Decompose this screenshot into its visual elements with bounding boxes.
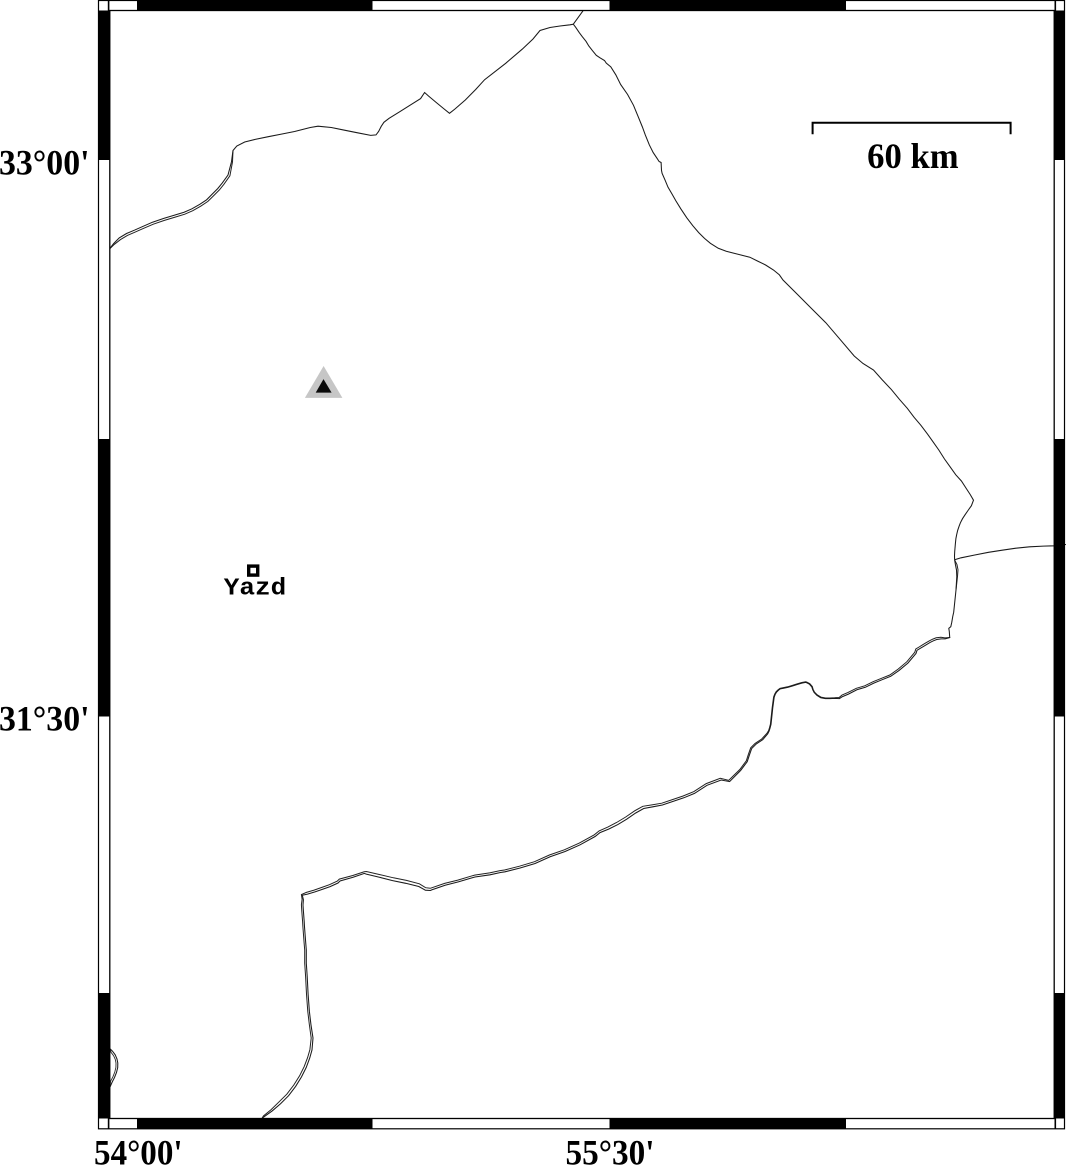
svg-text:31°30': 31°30' xyxy=(0,699,90,739)
svg-text:33°00': 33°00' xyxy=(0,143,90,183)
svg-text:54°00': 54°00' xyxy=(94,1133,183,1167)
svg-text:Yazd: Yazd xyxy=(224,576,286,603)
svg-text:60 km: 60 km xyxy=(867,136,959,176)
svg-text:55°30': 55°30' xyxy=(566,1133,655,1167)
